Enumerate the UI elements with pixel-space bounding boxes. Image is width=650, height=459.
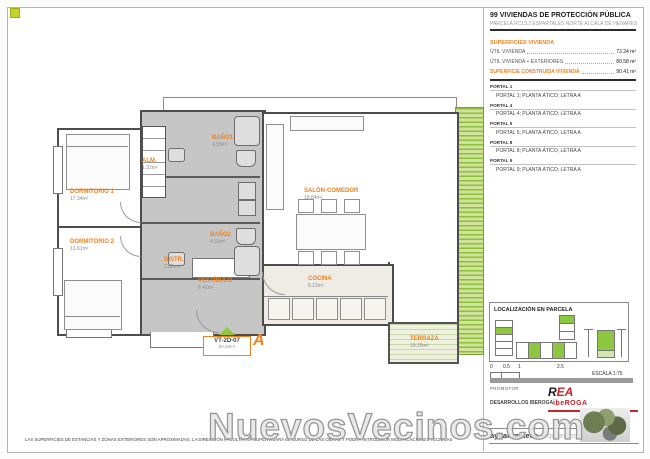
- portal-item: PORTAL 4 PORTAL 4; PLANTA ÁTICO; LETRA A: [490, 103, 636, 118]
- scale-label: ESCALA 1:75: [592, 371, 623, 377]
- portal-header: PORTAL 8: [490, 140, 636, 147]
- shower: [234, 116, 260, 146]
- kitchen-appliance: [292, 298, 314, 320]
- detail-bracket: [617, 329, 626, 330]
- room-label-vestibulo: VESTÍBULO 8.41m²: [198, 278, 232, 291]
- room-area: 4.55m²: [212, 142, 233, 148]
- room-area: 8.41m²: [198, 285, 232, 291]
- utility-appliance: [238, 182, 256, 200]
- detail-bracket: [584, 329, 593, 330]
- room-name: DISTR.: [164, 257, 184, 264]
- kitchen-appliance: [340, 298, 362, 320]
- surface-label: SUPERFICIE CONSTRUIDA VIVIENDA: [490, 69, 580, 75]
- core-wall: [142, 222, 260, 224]
- portal-item: PORTAL 9 PORTAL 9; PLANTA ÁTICO; LETRA A: [490, 158, 636, 173]
- bed-pillow-line: [64, 316, 120, 329]
- sheet-subtitle: PARCELA RC13.2 ESPARTALES NORTE ALCALÁ D…: [490, 21, 638, 27]
- room-label-salon-comedor: SALÓN-COMEDOR 18.84m²: [304, 188, 358, 201]
- rea-logo: REA: [548, 386, 573, 398]
- portal-header: PORTAL 5: [490, 121, 636, 128]
- chair: [344, 251, 360, 265]
- room-area: 17.34m²: [70, 196, 114, 202]
- portal-detail: PORTAL 9; PLANTA ÁTICO; LETRA A: [490, 165, 636, 173]
- room-name: DORMITORIO 1: [70, 189, 114, 196]
- title-rule: [490, 29, 636, 31]
- room-name: SALÓN-COMEDOR: [304, 188, 358, 195]
- portal-detail: PORTAL 1; PLANTA ÁTICO; LETRA A: [490, 91, 636, 99]
- room-label-terraza: TERRAZA 19.16m²: [410, 336, 439, 349]
- room-label-dormitorio-1: DORMITORIO 1 17.34m²: [70, 189, 114, 202]
- portal-header: PORTAL 4: [490, 103, 636, 110]
- detail-bracket: [588, 329, 589, 357]
- location-in-plot-box: LOCALIZACIÓN EN PARCELA: [489, 302, 629, 362]
- logo-letters: EA: [557, 385, 574, 399]
- room-area: 8.12m²: [308, 283, 332, 289]
- room-label-dormitorio-2: DORMITORIO 2 12.61m²: [70, 239, 114, 252]
- toilet: [236, 150, 256, 167]
- shower: [234, 246, 260, 276]
- room-area: 18.84m²: [304, 195, 358, 201]
- room-name: ALM.: [142, 158, 158, 165]
- room-label-bano2: BAÑO2 4.55m²: [210, 232, 231, 245]
- utility-appliance: [238, 200, 256, 216]
- room-area: 1.32m²: [142, 165, 158, 171]
- scale-bar: [490, 378, 633, 383]
- living-room-extension: [388, 262, 459, 326]
- dotted-leader: [527, 53, 614, 54]
- unit-letter: A: [253, 332, 265, 350]
- dotted-leader: [582, 73, 615, 74]
- portal-item: PORTAL 8 PORTAL 8; PLANTA ÁTICO; LETRA A: [490, 140, 636, 155]
- toilet: [236, 228, 256, 245]
- room-area: 2.82m²: [164, 264, 184, 270]
- window: [53, 146, 63, 194]
- location-title: LOCALIZACIÓN EN PARCELA: [494, 307, 572, 313]
- kitchen-appliance: [268, 298, 290, 320]
- sofa: [266, 124, 284, 210]
- room-label-cocina: COCINA 8.12m²: [308, 276, 332, 289]
- dining-table: [296, 214, 366, 250]
- sofa: [290, 116, 364, 131]
- watermark-text: NuevosVecinos.com: [208, 406, 585, 448]
- surfaces-table: ÚTIL VIVIENDA 73.24 m² ÚTIL VIVIENDA + E…: [490, 49, 636, 81]
- sheet-title: 99 VIVIENDAS DE PROTECCIÓN PÚBLICA: [490, 12, 638, 20]
- bedroom-divider-wall: [59, 226, 140, 228]
- surface-value: 90.41 m²: [616, 69, 636, 75]
- bed-pillow-line: [66, 134, 128, 147]
- dotted-leader: [565, 63, 614, 64]
- green-terrace-band: [455, 107, 484, 355]
- scale-tick: 2.5: [557, 364, 564, 370]
- north-arrow-icon: [219, 327, 235, 335]
- room-area: 12.61m²: [70, 246, 114, 252]
- room-name: TERRAZA: [410, 336, 439, 343]
- portales-list: PORTAL 1 PORTAL 1; PLANTA ÁTICO; LETRA A…: [490, 84, 636, 177]
- surface-value: 80.58 m²: [616, 59, 636, 65]
- surface-row: ÚTIL VIVIENDA 73.24 m²: [490, 49, 636, 55]
- plan-sheet: DORMITORIO 1 17.34m² DORMITORIO 2 12.61m…: [0, 0, 650, 459]
- room-area: 19.16m²: [410, 343, 439, 349]
- surface-row: ÚTIL VIVIENDA + EXTERIORES 80.58 m²: [490, 59, 636, 65]
- render-thumbnail-image: [580, 408, 630, 442]
- detail-bracket: [621, 329, 622, 357]
- promoter-label: PROMOTOR: [490, 386, 519, 391]
- portal-item: PORTAL 5 PORTAL 5; PLANTA ÁTICO; LETRA A: [490, 121, 636, 136]
- chair: [321, 251, 337, 265]
- portal-detail: PORTAL 4; PLANTA ÁTICO; LETRA A: [490, 110, 636, 118]
- portal-header: PORTAL 9: [490, 158, 636, 165]
- portal-item: PORTAL 1 PORTAL 1; PLANTA ÁTICO; LETRA A: [490, 84, 636, 99]
- scale-tick: 0: [490, 364, 493, 370]
- detail-terrace: [597, 350, 615, 358]
- unit-code-badge: VT-2D-07 80.58m²: [203, 336, 251, 356]
- room-label-distribuidor: DISTR. 2.82m²: [164, 257, 184, 270]
- kitchen-appliance: [364, 298, 386, 320]
- kitchen-appliance: [316, 298, 338, 320]
- room-area: 4.55m²: [210, 239, 231, 245]
- surface-label: ÚTIL VIVIENDA: [490, 49, 525, 55]
- surface-label: ÚTIL VIVIENDA + EXTERIORES: [490, 59, 563, 65]
- surfaces-section-title: SUPERFICIES VIVIENDA: [490, 40, 554, 46]
- surface-value: 73.24 m²: [616, 49, 636, 55]
- room-name: DORMITORIO 2: [70, 239, 114, 246]
- room-name: BAÑO1: [212, 135, 233, 142]
- room-name: COCINA: [308, 276, 332, 283]
- corner-registration-mark: [10, 8, 20, 18]
- unit-area: 80.58m²: [204, 345, 250, 350]
- room-label-bano1: BAÑO1 4.55m²: [212, 135, 233, 148]
- scale-tick: 1: [518, 364, 521, 370]
- chair: [298, 251, 314, 265]
- room-label-alm: ALM. 1.32m²: [142, 158, 158, 171]
- surface-total-row: SUPERFICIE CONSTRUIDA VIVIENDA 90.41 m²: [490, 69, 636, 75]
- room-name: VESTÍBULO: [198, 278, 232, 285]
- site-block: [559, 331, 575, 340]
- portal-detail: PORTAL 5; PLANTA ÁTICO; LETRA A: [490, 128, 636, 136]
- logo-letter: R: [548, 385, 557, 399]
- portal-header: PORTAL 1: [490, 84, 636, 91]
- room-name: BAÑO2: [210, 232, 231, 239]
- portal-detail: PORTAL 8; PLANTA ÁTICO; LETRA A: [490, 147, 636, 155]
- scale-tick: 0.5: [503, 364, 510, 370]
- site-block: [495, 348, 513, 356]
- detail-unit-highlight: [597, 330, 615, 351]
- site-block: [564, 342, 577, 359]
- sink: [168, 148, 185, 162]
- surfaces-rule: [490, 79, 636, 81]
- window: [53, 248, 63, 296]
